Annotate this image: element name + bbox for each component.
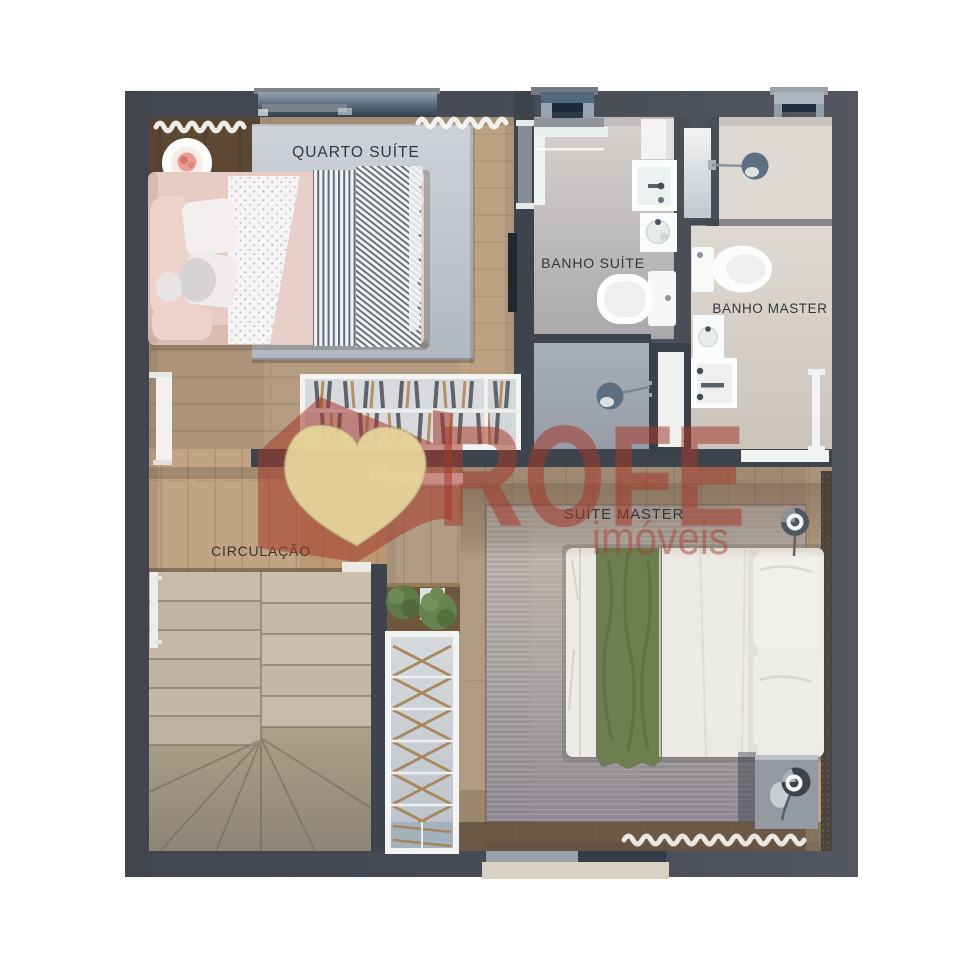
svg-text:QUARTO SUÍTE: QUARTO SUÍTE bbox=[292, 144, 420, 161]
svg-text:imóveis: imóveis bbox=[592, 512, 729, 564]
svg-text:BANHO SUÍTE: BANHO SUÍTE bbox=[541, 255, 645, 271]
svg-text:BANHO MASTER: BANHO MASTER bbox=[712, 301, 827, 316]
svg-text:R: R bbox=[437, 397, 523, 556]
